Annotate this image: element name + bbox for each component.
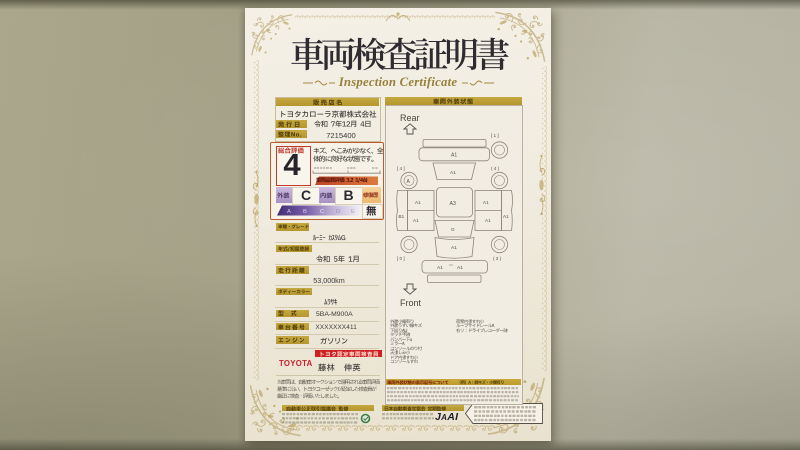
svg-text:A1: A1 (457, 265, 463, 271)
svg-text:A1: A1 (503, 214, 509, 219)
svg-text:( 4 ): ( 4 ) (491, 166, 500, 171)
svg-text:A3: A3 (450, 201, 456, 207)
svg-text:G: G (451, 227, 455, 233)
svg-text:C: C (320, 209, 324, 215)
svg-text:E: E (351, 209, 355, 215)
svg-text:A1: A1 (451, 153, 457, 159)
svg-text:[ 1 ]: [ 1 ] (491, 133, 499, 138)
svg-text:A1: A1 (450, 170, 456, 176)
svg-text:A: A (407, 179, 411, 185)
svg-text:B1: B1 (399, 214, 405, 219)
svg-text:A: A (287, 209, 291, 215)
svg-text:( 3 ): ( 3 ) (493, 256, 502, 261)
svg-text:A1: A1 (483, 200, 489, 205)
svg-text:B: B (303, 209, 307, 215)
svg-text:A1: A1 (451, 245, 457, 251)
svg-text:A1: A1 (437, 265, 443, 271)
svg-text:[ 4 ]: [ 4 ] (397, 166, 405, 171)
svg-text:[ 0 ]: [ 0 ] (397, 256, 405, 261)
svg-text:D: D (336, 209, 340, 215)
svg-text:A1: A1 (415, 200, 421, 205)
svg-text:A1: A1 (485, 218, 491, 223)
svg-text:A1: A1 (413, 218, 419, 223)
